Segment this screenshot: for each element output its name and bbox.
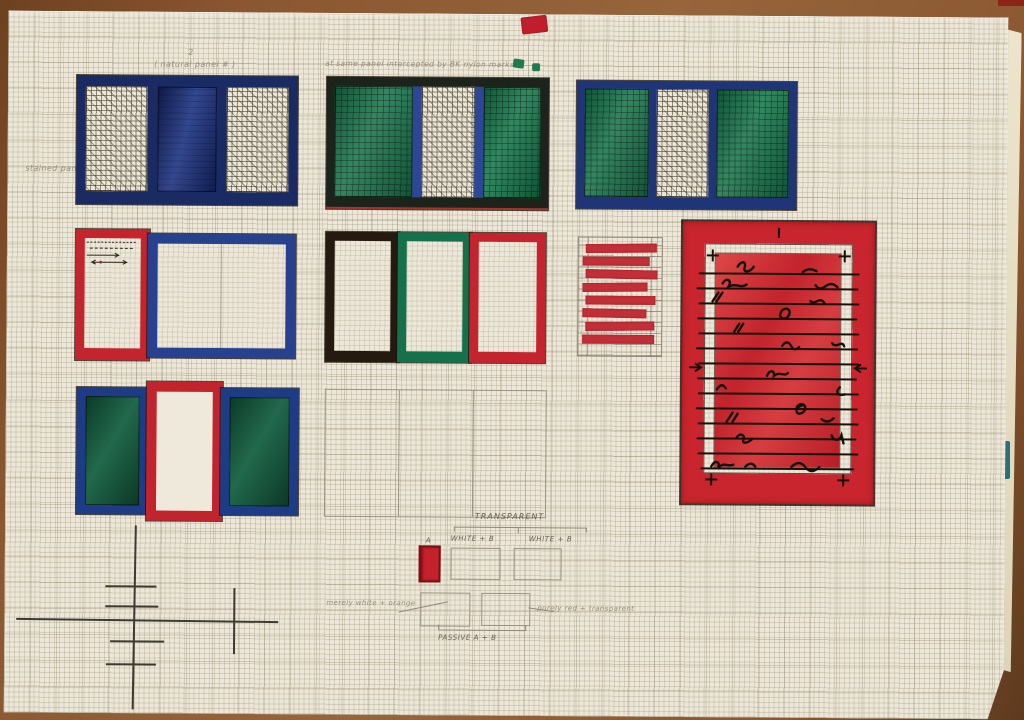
sketch-horizontal-line: [16, 618, 278, 623]
panel2-caption: at same panel intercepted by BK nylon ma…: [325, 59, 514, 69]
bracket-tick: [525, 625, 526, 630]
panel-row3-red-white: [146, 381, 223, 521]
navy-pane: [157, 87, 217, 192]
photo-of-sketch: 2 ( natural panel # ) at same panel inte…: [0, 0, 1024, 720]
red-band: [585, 296, 655, 305]
panel-row3-blue-green-2: [220, 388, 299, 516]
table-red-sliver: [998, 0, 1024, 6]
hatched-pane: [226, 87, 289, 192]
red-swatch-a: [418, 545, 440, 582]
pencil-divider: [472, 391, 474, 517]
hatched-pane: [85, 86, 148, 191]
sketch-tick: [106, 663, 156, 665]
bracket-top: [454, 527, 587, 529]
bracket-tick: [438, 625, 439, 630]
red-band: [583, 283, 648, 292]
panel-row2-blue-frame: [147, 233, 296, 358]
transparent-label: TRANSPARENT: [475, 512, 544, 521]
green-dot-2: [532, 63, 540, 71]
panel-row1-col1: [76, 75, 298, 206]
bracket-tick: [586, 528, 587, 533]
green-pane: [85, 396, 140, 505]
empty-pane: [157, 244, 286, 349]
red-marker-swatch-top: [520, 15, 548, 35]
pencil-square-passive-b: [481, 593, 530, 626]
swatch-letter-label: A: [426, 536, 431, 544]
panel-row1-col3: [576, 80, 797, 210]
panel-row3-blue-green-1: [76, 387, 149, 514]
red-band: [585, 322, 654, 331]
pencil-divider: [220, 244, 222, 348]
empty-pane: [334, 241, 391, 351]
hatched-pane: [421, 86, 475, 197]
sketch-short-vertical: [233, 588, 235, 654]
panel-row2-green-frame: [397, 232, 472, 363]
green-pane: [716, 89, 789, 198]
white-b-left-label: WHITE + B: [451, 535, 495, 543]
hatched-pane: [656, 89, 709, 197]
white-pane: [156, 392, 213, 511]
panel-row2-dark-frame: [325, 232, 400, 363]
panel1-caption: ( natural panel # ): [154, 60, 236, 70]
note-left: merely white + orange: [326, 599, 415, 608]
pencil-square-white-b-2: [513, 548, 561, 580]
bracket-bottom: [438, 630, 526, 632]
sketch-tick: [105, 585, 156, 587]
green-pane: [229, 397, 290, 506]
panel1-number: 2: [188, 48, 194, 57]
empty-pane: [478, 242, 537, 352]
panel-row2-red-frame: [75, 229, 150, 361]
green-dot-1: [513, 58, 525, 69]
panel-row2-red-frame-2: [469, 233, 546, 364]
red-striped-grid: [577, 236, 663, 357]
green-pane: [584, 89, 649, 197]
pencil-square-white-b-1: [451, 548, 501, 580]
wire-scribble-overlay: [681, 221, 875, 504]
red-band: [582, 335, 654, 345]
empty-pane: [406, 241, 463, 351]
pencil-divider: [398, 390, 400, 516]
red-band: [583, 257, 650, 266]
bracket-tick: [518, 527, 519, 533]
pencil-square-passive-a: [420, 592, 470, 626]
red-band: [586, 244, 657, 253]
empty-pencil-rect: [324, 389, 547, 519]
bracket-tick: [454, 527, 455, 532]
green-pane: [334, 86, 413, 198]
sketch-tick: [105, 605, 158, 607]
red-band: [582, 308, 646, 318]
white-b-right-label: WHITE + B: [529, 535, 573, 543]
sketch-vertical-line: [132, 525, 137, 709]
wire-mini-sketch: [85, 238, 141, 268]
empty-pane: [84, 238, 141, 348]
note-right: purely red + transparent: [537, 604, 634, 613]
red-bands: [582, 240, 657, 355]
red-band: [586, 269, 658, 280]
green-pane: [483, 87, 541, 198]
big-red-panel: [681, 221, 875, 504]
panel-row1-col2: [326, 77, 549, 211]
sketch-tick: [110, 640, 164, 642]
graph-paper-sheet: 2 ( natural panel # ) at same panel inte…: [4, 11, 1009, 720]
passive-label: PASSIVE A + B: [438, 634, 497, 642]
